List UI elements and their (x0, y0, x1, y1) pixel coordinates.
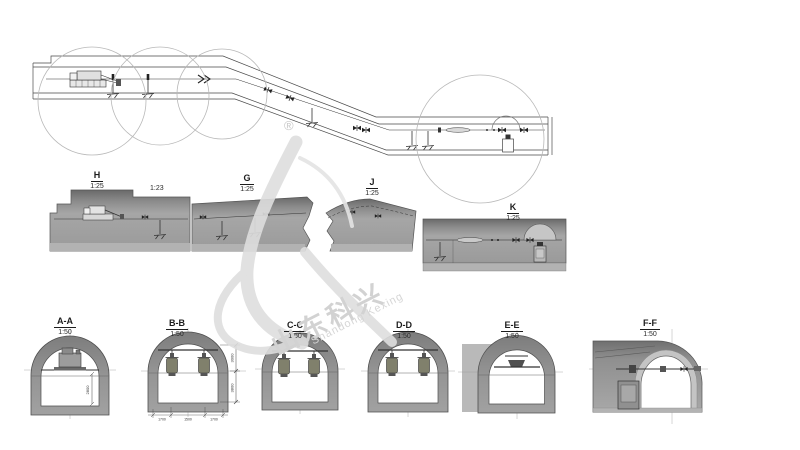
bb-height-upper-dim: 3000 (230, 353, 235, 363)
detail-circle-1 (38, 47, 146, 155)
plan-conveyor-icon (446, 128, 470, 133)
detail-circle-2 (111, 47, 209, 145)
detail-circle-4 (416, 75, 544, 203)
profile-g-label: G 1:25 (225, 169, 269, 193)
bb-width-mid-dim: 1500 (184, 418, 192, 422)
plan-centerline (46, 79, 545, 130)
bb-height-lower-dim: 3800 (230, 383, 235, 393)
aa-height-dim: 2800 (85, 385, 90, 395)
detail-circle-3 (177, 49, 267, 139)
section-ee (458, 330, 563, 419)
profile-j (326, 199, 416, 251)
registered-mark-icon: ® (284, 118, 294, 133)
section-aa-label: A-A 1:50 (43, 312, 87, 336)
profile-j-label: J 1:25 (350, 173, 394, 197)
profile-k-conveyor-icon (457, 238, 483, 243)
section-ff-cabinet-icon (618, 381, 639, 409)
section-dd (361, 329, 455, 417)
drawing-canvas: 2800 3000 3800 1700 1500 1700 (0, 0, 800, 450)
bb-width-left-dim: 1700 (158, 418, 166, 422)
section-aa: 2800 (24, 329, 116, 419)
bb-width-right-dim: 1700 (210, 418, 218, 422)
section-ff-label: F-F 1:50 (628, 314, 672, 338)
profile-k (423, 219, 566, 271)
detail-scale-label: 1:23 (150, 185, 164, 192)
profile-h-label: H 1:25 (75, 166, 119, 190)
profile-h (50, 190, 190, 251)
cad-sheet: 2800 3000 3800 1700 1500 1700 (0, 0, 800, 450)
section-ee-label: E-E 1:50 (490, 316, 534, 340)
profile-k-label: K 1:25 (491, 198, 535, 222)
section-bb-label: B-B 1:50 (155, 314, 199, 338)
plan-outer-top-line (33, 56, 548, 117)
plan-equipment-symbols (198, 75, 528, 152)
section-dd-label: D-D 1:50 (382, 316, 426, 340)
section-ff (589, 329, 708, 424)
plan-cabinet-icon (503, 139, 514, 152)
